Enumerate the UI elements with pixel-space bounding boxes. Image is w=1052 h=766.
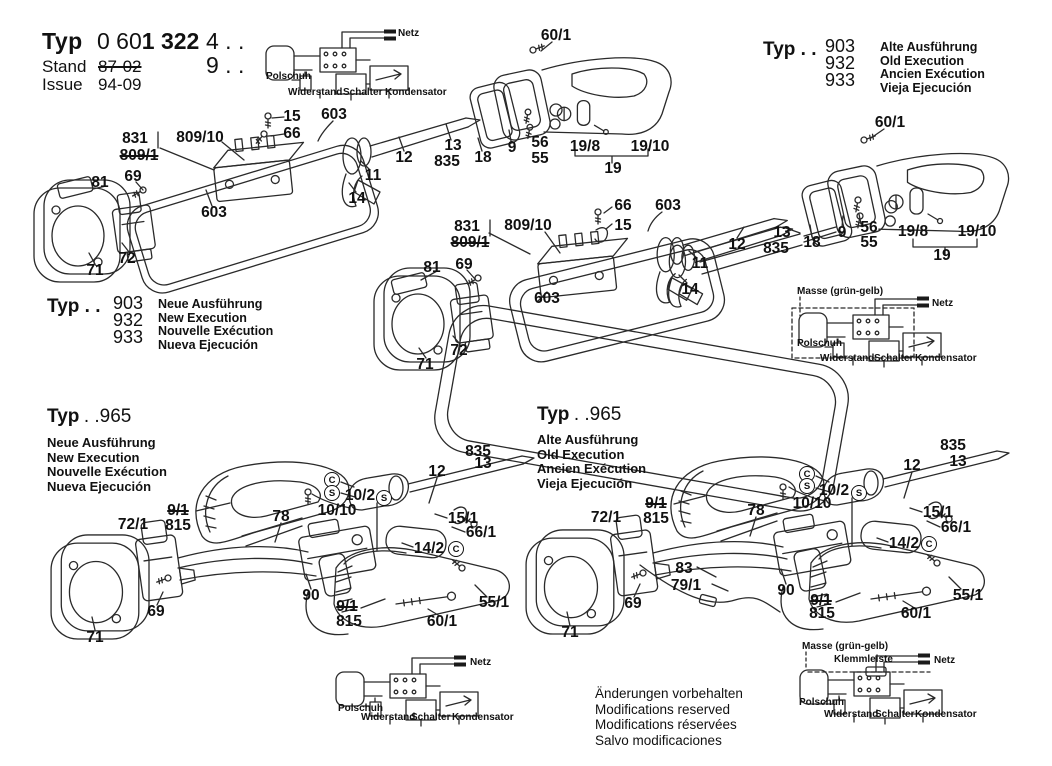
part-callout-83: 83 (675, 560, 692, 578)
part-callout-11: 11 (365, 167, 381, 185)
part-callout-14: 14 (348, 190, 365, 208)
schematic2-kondensator-label: Kondensator (915, 353, 977, 364)
schematic3-kondensator-label: Kondensator (452, 712, 514, 723)
part-callout-9: 9 (838, 224, 847, 242)
part-callout-66: 66 (283, 125, 300, 143)
schematic2-masse-label: Masse (grün-gelb) (797, 286, 883, 297)
part-callout-66-1: 66/1 (466, 524, 496, 542)
part-callout-S: S (799, 478, 815, 494)
schematic4-masse-label: Masse (grün-gelb) (802, 641, 888, 652)
part-callout-9: 9 (508, 139, 517, 157)
typblock-new965-label: Typ . .965 (47, 406, 131, 428)
part-callout-19-8: 19/8 (570, 138, 600, 156)
part-callout-19: 19 (933, 247, 950, 265)
type-number-bold: 1 322 (142, 28, 200, 54)
part-callout-18: 18 (803, 234, 820, 252)
part-callout-815: 815 (809, 605, 835, 623)
schematic4-polschuh-label: Polschuh (799, 697, 844, 708)
type-number-light: 0 60 (97, 28, 142, 54)
schematic3-widerstand-label: Widerstand (361, 712, 415, 723)
part-callout-69: 69 (124, 168, 141, 186)
part-callout-809-1: 809/1 (451, 234, 490, 252)
part-callout-S: S (851, 485, 867, 501)
part-callout-60-1: 60/1 (875, 114, 905, 132)
part-callout-12: 12 (428, 463, 445, 481)
part-callout-10-10: 10/10 (318, 502, 357, 520)
part-callout-815: 815 (643, 510, 669, 528)
parts-diagram-sheet: Typ 0 601 322 4 . . 9 . . Stand 87-02 Is… (0, 0, 1052, 766)
model-number: . .965 (574, 404, 622, 425)
part-callout-14-2: 14/2 (889, 535, 919, 553)
part-callout-90: 90 (302, 587, 319, 605)
part-callout-72-1: 72/1 (591, 509, 621, 527)
part-callout-13: 13 (949, 453, 966, 471)
part-callout-809-10: 809/10 (504, 217, 551, 235)
part-callout-11: 11 (692, 255, 708, 273)
exec-line: Ancien Exécution (880, 68, 985, 82)
part-callout-835: 835 (763, 240, 789, 258)
title-suffix-row2: 9 . . (206, 52, 244, 79)
model-number: . .965 (84, 406, 132, 427)
exec-line: Nouvelle Exécution (47, 465, 167, 480)
part-callout-69: 69 (455, 256, 472, 274)
typblock-new903-models: 903 932 933 (93, 295, 143, 346)
schematic2-polschuh-label: Polschuh (797, 338, 842, 349)
part-callout-603: 603 (321, 106, 347, 124)
part-callout-55-1: 55/1 (953, 587, 983, 605)
title-typ-label: Typ (42, 28, 83, 55)
exec-line: Neue Ausführung (47, 436, 167, 451)
stand-value: 87-02 (98, 57, 141, 77)
part-callout-60-1: 60/1 (901, 605, 931, 623)
exec-line: Alte Ausführung (880, 41, 985, 55)
part-callout-78: 78 (272, 508, 289, 526)
part-callout-19: 19 (604, 160, 621, 178)
part-callout-66-1: 66/1 (941, 519, 971, 537)
exec-line: Old Execution (880, 55, 985, 69)
typ-label: Typ (537, 404, 569, 425)
model-number: 933 (805, 72, 855, 89)
schematic4-klemmleiste-label: Klemmleiste (834, 654, 893, 665)
schematic4-netz-label: Netz (934, 655, 955, 666)
part-callout-60-1: 60/1 (541, 27, 571, 45)
footer-line: Änderungen vorbehalten (595, 686, 743, 702)
part-callout-79-1: 79/1 (671, 577, 701, 595)
part-callout-603: 603 (655, 197, 681, 215)
part-callout-81: 81 (91, 174, 108, 192)
part-callout-C: C (448, 541, 464, 557)
part-callout-809-10: 809/10 (176, 129, 223, 147)
part-callout-C: C (921, 536, 937, 552)
part-callout-15: 15 (283, 108, 300, 126)
part-callout-14-2: 14/2 (414, 540, 444, 558)
part-callout-S: S (324, 485, 340, 501)
part-callout-71: 71 (86, 262, 103, 280)
schematic1-polschuh-label: Polschuh (266, 71, 311, 82)
part-callout-90: 90 (777, 582, 794, 600)
schematic1-kondensator-label: Kondensator (385, 87, 447, 98)
exec-line: Nueva Ejecución (158, 339, 273, 353)
part-callout-81: 81 (423, 259, 440, 277)
part-callout-815: 815 (165, 517, 191, 535)
typblock-old903-exec: Alte Ausführung Old Execution Ancien Exé… (880, 41, 985, 95)
part-callout-78: 78 (747, 502, 764, 520)
part-callout-603: 603 (201, 204, 227, 222)
typblock-old903-models: 903 932 933 (805, 38, 855, 89)
typblock-new965-exec: Neue Ausführung New Execution Nouvelle E… (47, 436, 167, 494)
part-callout-15: 15 (614, 217, 631, 235)
part-callout-18: 18 (474, 149, 491, 167)
part-callout-809-1: 809/1 (120, 147, 159, 165)
schematic1-widerstand-label: Widerstand (288, 87, 342, 98)
issue-label: Issue (42, 75, 83, 95)
part-callout-14: 14 (681, 281, 698, 299)
part-callout-19-8: 19/8 (898, 223, 928, 241)
typblock-old965-exec: Alte Ausführung Old Execution Ancien Exé… (537, 433, 646, 491)
footer-line: Modifications réservées (595, 717, 743, 733)
exec-line: Neue Ausführung (158, 298, 273, 312)
part-callout-69: 69 (147, 603, 164, 621)
footer-line: Salvo modificaciones (595, 733, 743, 749)
exec-line: Vieja Ejecución (880, 82, 985, 96)
part-callout-72: 72 (118, 250, 135, 268)
stand-label: Stand (42, 57, 86, 77)
schematic4-kondensator-label: Kondensator (915, 709, 977, 720)
schematic2-schalter-label: Schalter (874, 353, 913, 364)
part-callout-13: 13 (474, 455, 491, 473)
part-callout-69: 69 (624, 595, 641, 613)
exec-line: New Execution (158, 312, 273, 326)
schematic3-netz-label: Netz (470, 657, 491, 668)
exec-line: Old Execution (537, 448, 646, 463)
part-callout-603: 603 (534, 290, 560, 308)
part-callout-835: 835 (434, 153, 460, 171)
exec-line: Ancien Exécution (537, 462, 646, 477)
schematic2-widerstand-label: Widerstand (820, 353, 874, 364)
part-callout-66: 66 (614, 197, 631, 215)
part-callout-55: 55 (531, 150, 548, 168)
typblock-old965-label: Typ . .965 (537, 404, 621, 426)
part-callout-72: 72 (450, 342, 467, 360)
schematic4-widerstand-label: Widerstand (824, 709, 878, 720)
part-callout-12: 12 (903, 457, 920, 475)
part-callout-S: S (376, 490, 392, 506)
part-callout-60-1: 60/1 (427, 613, 457, 631)
model-number: 933 (93, 329, 143, 346)
footer-modifications-note: Änderungen vorbehalten Modifications res… (595, 686, 743, 748)
exec-line: Vieja Ejecución (537, 477, 646, 492)
schematic1-netz-label: Netz (398, 28, 419, 39)
schematic2-netz-label: Netz (932, 298, 953, 309)
part-callout-55: 55 (860, 234, 877, 252)
part-callout-12: 12 (395, 149, 412, 167)
typ-label: Typ (47, 406, 79, 427)
title-suffix-row1: 4 . . (206, 28, 244, 55)
schematic3-schalter-label: Schalter (411, 712, 450, 723)
exec-line: Alte Ausführung (537, 433, 646, 448)
schematic1-schalter-label: Schalter (343, 87, 382, 98)
part-callout-831: 831 (122, 130, 148, 148)
part-callout-55-1: 55/1 (479, 594, 509, 612)
issue-value: 94-09 (98, 75, 141, 95)
part-callout-71: 71 (416, 356, 433, 374)
typblock-new903-exec: Neue Ausführung New Execution Nouvelle E… (158, 298, 273, 352)
part-callout-19-10: 19/10 (958, 223, 997, 241)
part-callout-10-10: 10/10 (793, 495, 832, 513)
part-callout-72-1: 72/1 (118, 516, 148, 534)
exec-line: Nouvelle Exécution (158, 325, 273, 339)
part-callout-815: 815 (336, 613, 362, 631)
part-callout-71: 71 (561, 624, 578, 642)
part-callout-71: 71 (86, 629, 103, 647)
title-type-number: 0 601 322 (97, 28, 199, 55)
exec-line: Nueva Ejecución (47, 480, 167, 495)
part-callout-12: 12 (728, 236, 745, 254)
footer-line: Modifications reserved (595, 702, 743, 718)
exec-line: New Execution (47, 451, 167, 466)
schematic4-schalter-label: Schalter (875, 709, 914, 720)
part-callout-19-10: 19/10 (631, 138, 670, 156)
